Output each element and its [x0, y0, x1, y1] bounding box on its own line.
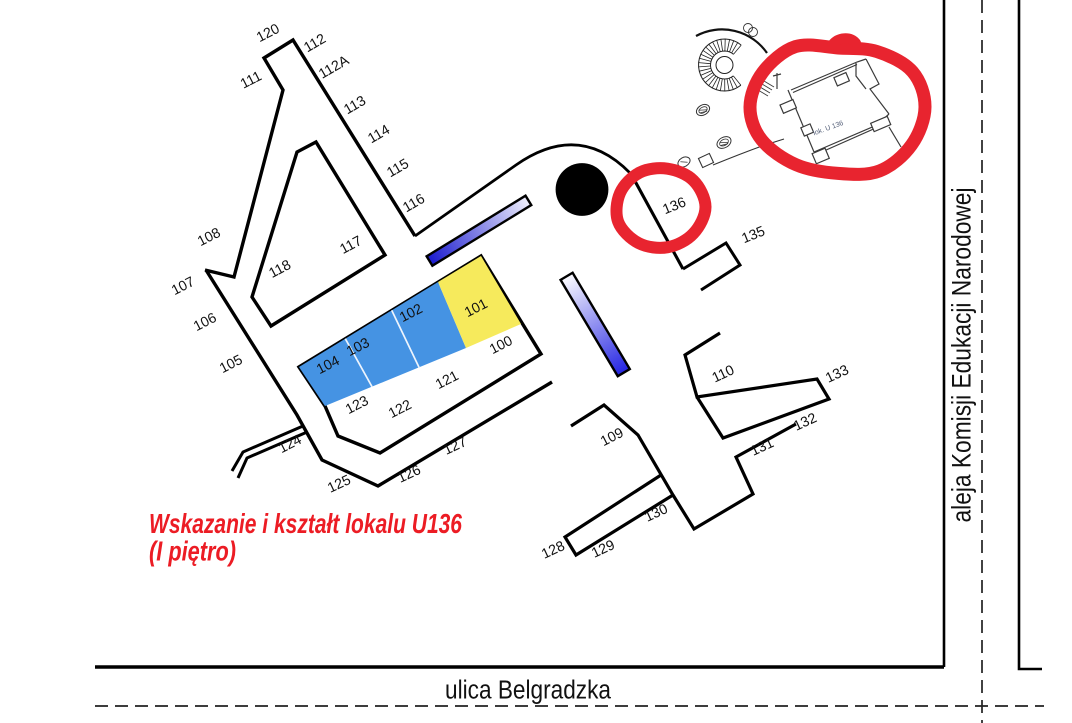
svg-text:Wskazanie i kształt lokalu U13: Wskazanie i kształt lokalu U136 — [149, 508, 462, 539]
svg-text:(I piętro): (I piętro) — [149, 536, 236, 567]
svg-text:ulica Belgradzka: ulica Belgradzka — [445, 677, 612, 705]
svg-text:aleja Komisji Edukacji Narodow: aleja Komisji Edukacji Narodowej — [947, 188, 977, 523]
